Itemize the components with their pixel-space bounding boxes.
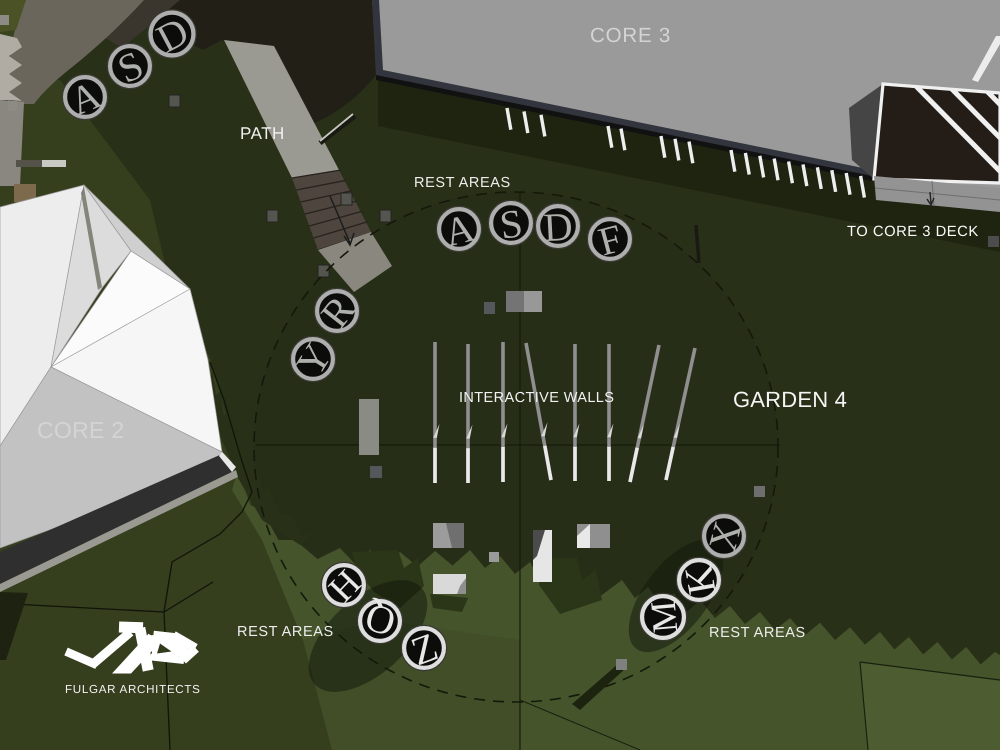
svg-text:TO CORE 3 DECK: TO CORE 3 DECK <box>847 224 979 240</box>
svg-text:INTERACTIVE WALLS: INTERACTIVE WALLS <box>459 390 614 406</box>
svg-text:GARDEN 4: GARDEN 4 <box>733 387 847 412</box>
svg-text:REST AREAS: REST AREAS <box>237 624 334 640</box>
svg-text:FULGAR ARCHITECTS: FULGAR ARCHITECTS <box>65 683 201 696</box>
svg-text:CORE 3: CORE 3 <box>590 24 671 47</box>
svg-text:CORE 2: CORE 2 <box>37 417 124 443</box>
svg-text:PATH: PATH <box>240 124 285 143</box>
svg-text:D: D <box>542 204 573 250</box>
svg-text:REST AREAS: REST AREAS <box>414 175 511 191</box>
svg-text:REST AREAS: REST AREAS <box>709 625 806 641</box>
svg-text:M: M <box>643 599 686 634</box>
